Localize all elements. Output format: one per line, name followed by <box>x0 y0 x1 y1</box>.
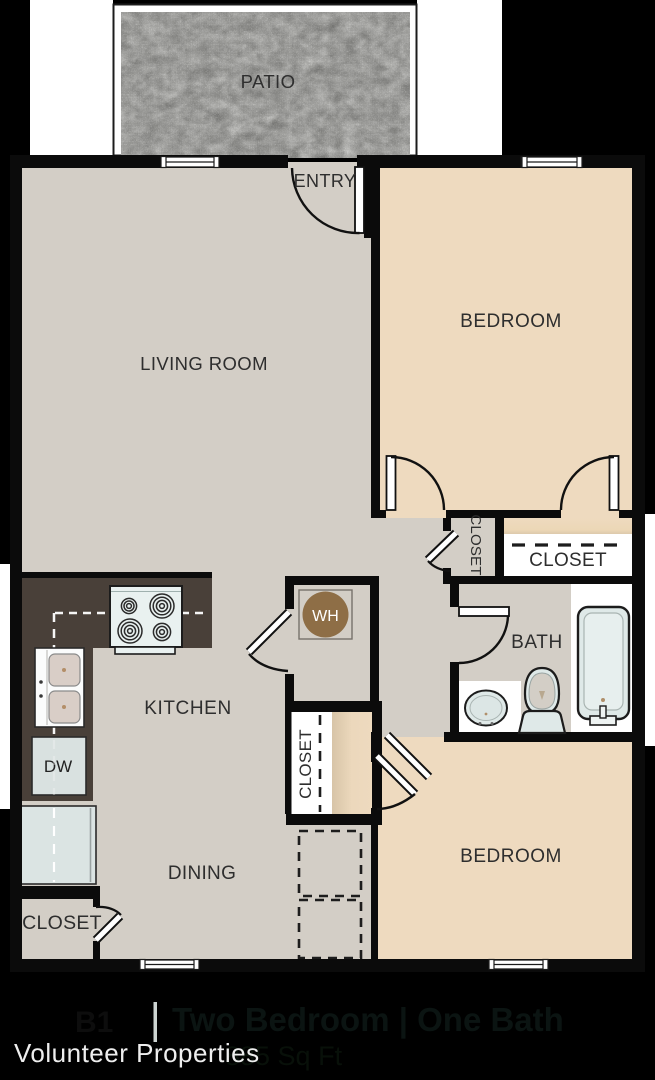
svg-text:CLOSET: CLOSET <box>22 912 102 934</box>
svg-text:BATH: BATH <box>511 632 563 653</box>
svg-text:Two Bedroom | One Bath: Two Bedroom | One Bath <box>172 1001 564 1038</box>
svg-text:WH: WH <box>312 608 339 625</box>
svg-text:PATIO: PATIO <box>241 71 296 92</box>
svg-text:CLOSET: CLOSET <box>467 514 484 575</box>
svg-text:LIVING ROOM: LIVING ROOM <box>140 353 268 374</box>
svg-text:BEDROOM: BEDROOM <box>460 846 562 867</box>
svg-text:CLOSET: CLOSET <box>529 550 607 571</box>
svg-text:CLOSET: CLOSET <box>296 729 315 799</box>
svg-text:ENTRY: ENTRY <box>294 171 357 191</box>
svg-text:KITCHEN: KITCHEN <box>144 698 232 719</box>
svg-text:DW: DW <box>44 757 72 776</box>
svg-text:Volunteer Properties: Volunteer Properties <box>14 1038 260 1068</box>
svg-text:BEDROOM: BEDROOM <box>460 311 562 332</box>
svg-text:DINING: DINING <box>168 863 236 884</box>
svg-text:B1: B1 <box>75 1006 113 1039</box>
